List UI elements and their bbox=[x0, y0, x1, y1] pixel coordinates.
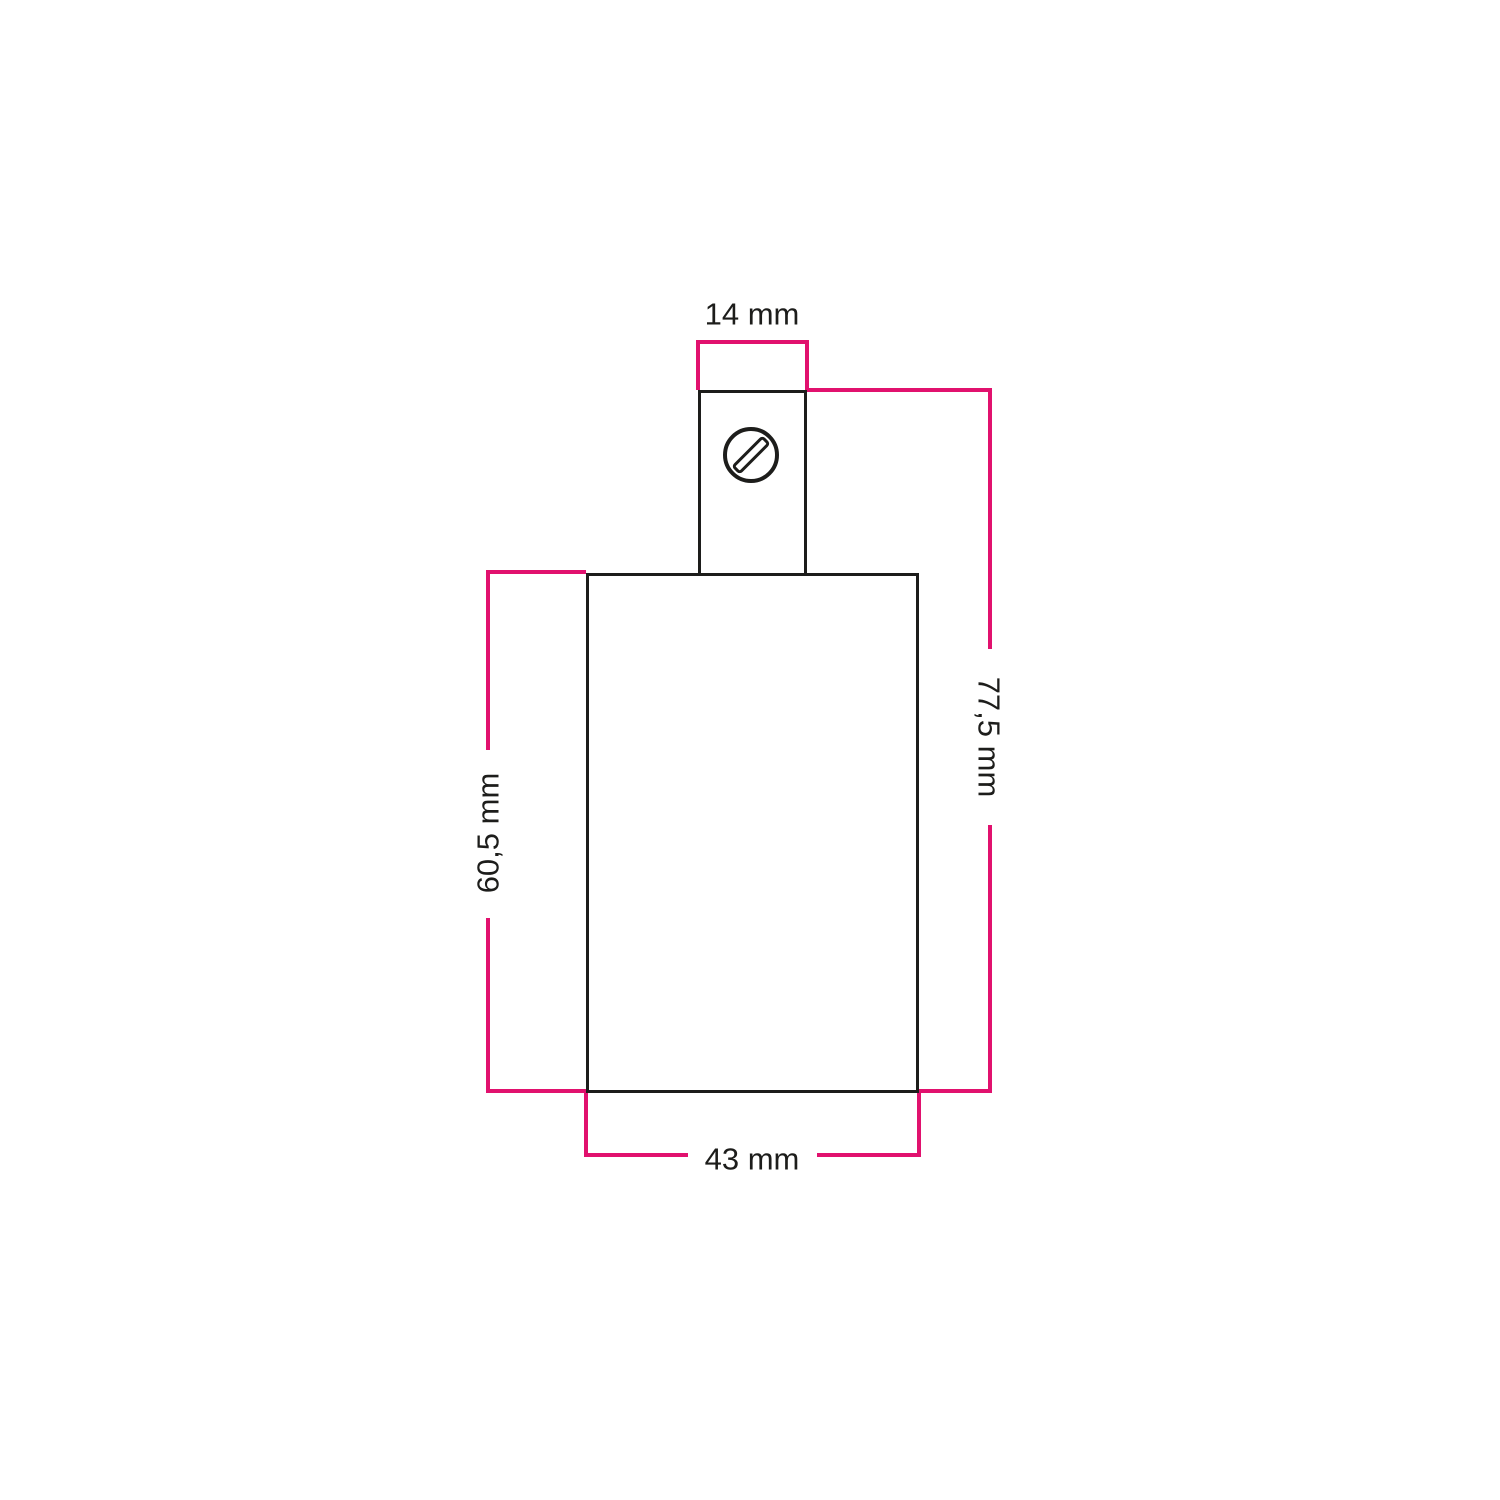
dim-body-height-line-upper bbox=[486, 570, 490, 750]
dimension-diagram: 14 mm 77,5 mm 60,5 mm 43 mm bbox=[0, 0, 1500, 1500]
dim-neck-width-bracket bbox=[696, 340, 809, 390]
dim-total-height-label: 77,5 mm bbox=[974, 677, 1005, 798]
dim-body-height-extension-bottom bbox=[486, 1089, 586, 1093]
dim-body-height-label: 60,5 mm bbox=[473, 773, 504, 894]
dim-body-height-line-lower bbox=[486, 918, 490, 1093]
dim-total-height-line-upper bbox=[988, 388, 992, 649]
dim-body-width-segment-right bbox=[817, 1153, 921, 1157]
screw-slot bbox=[731, 435, 771, 475]
dim-body-width-label: 43 mm bbox=[705, 1144, 800, 1175]
dim-total-height-extension-bottom bbox=[919, 1089, 992, 1093]
dim-body-width-line-right bbox=[917, 1093, 921, 1157]
dim-total-height-line-lower bbox=[988, 825, 992, 1093]
dim-body-width-segment-left bbox=[584, 1153, 688, 1157]
dim-body-width-line-left bbox=[584, 1093, 588, 1157]
dim-neck-width-label: 14 mm bbox=[705, 299, 800, 330]
dim-body-height-extension-top bbox=[486, 570, 586, 574]
lamp-holder-body-outline bbox=[586, 573, 919, 1093]
dim-total-height-extension-top bbox=[807, 388, 992, 392]
slotted-screw-icon bbox=[723, 427, 779, 483]
